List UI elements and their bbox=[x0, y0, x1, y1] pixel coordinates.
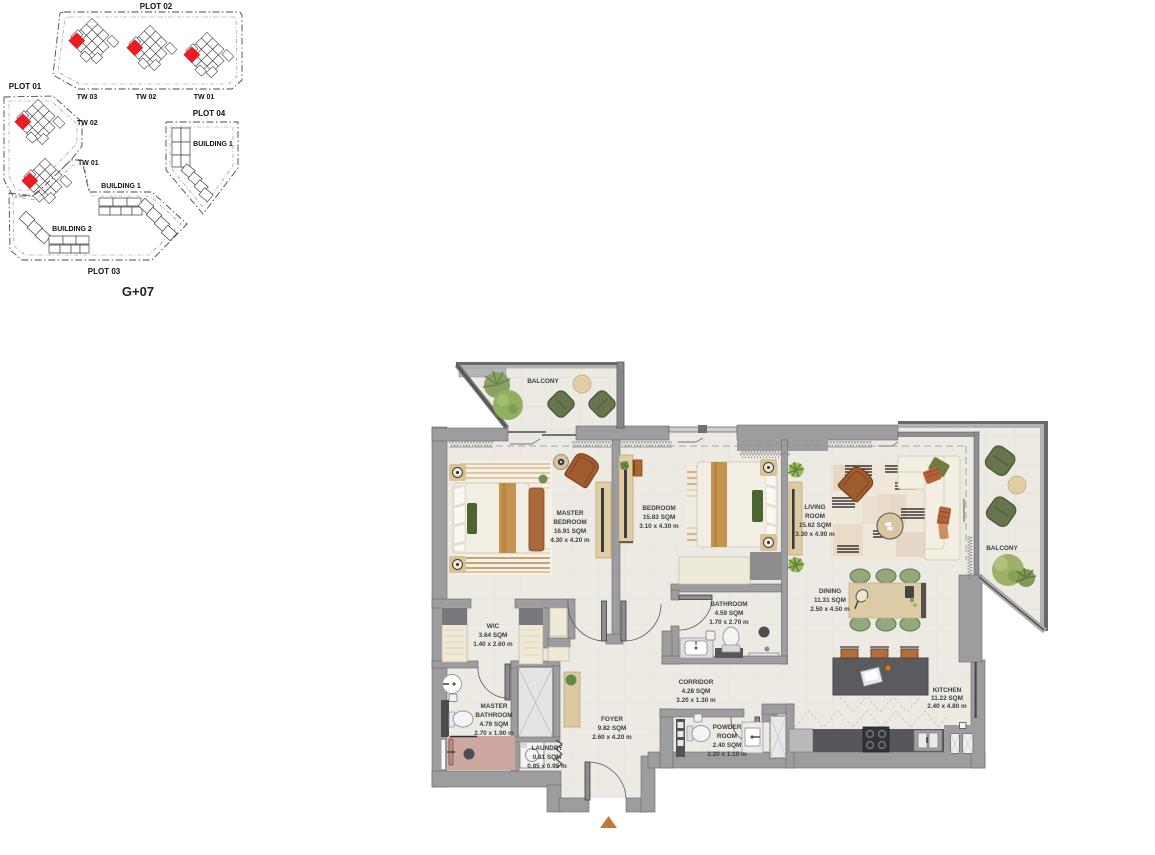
svg-text:TW 02: TW 02 bbox=[136, 94, 157, 101]
svg-text:1.70 x 2.70 m: 1.70 x 2.70 m bbox=[709, 619, 749, 626]
svg-text:15.83 SQM: 15.83 SQM bbox=[643, 514, 675, 521]
svg-text:G+07: G+07 bbox=[122, 284, 154, 299]
svg-text:2.60 x 4.20 m: 2.60 x 4.20 m bbox=[592, 734, 632, 741]
svg-text:15.62 SQM: 15.62 SQM bbox=[799, 522, 831, 529]
svg-text:BUILDING 2: BUILDING 2 bbox=[52, 226, 92, 233]
svg-text:MASTER: MASTER bbox=[557, 510, 584, 517]
svg-text:POWDER: POWDER bbox=[713, 724, 742, 731]
svg-text:16.91 SQM: 16.91 SQM bbox=[554, 528, 586, 535]
svg-text:3.64 SQM: 3.64 SQM bbox=[479, 632, 508, 639]
svg-text:4.30 x 4.20 m: 4.30 x 4.20 m bbox=[550, 537, 590, 544]
svg-text:TW 01: TW 01 bbox=[78, 160, 99, 167]
svg-text:3.30 x 4.90 m: 3.30 x 4.90 m bbox=[795, 531, 835, 538]
svg-text:BALCONY: BALCONY bbox=[527, 378, 559, 385]
svg-text:2.40 SQM: 2.40 SQM bbox=[713, 742, 742, 749]
svg-text:DINING: DINING bbox=[819, 588, 841, 595]
svg-text:BEDROOM: BEDROOM bbox=[642, 505, 675, 512]
svg-text:1.40 x 2.60 m: 1.40 x 2.60 m bbox=[473, 641, 513, 648]
svg-text:BUILDING 1: BUILDING 1 bbox=[193, 141, 233, 148]
svg-text:2.50 x 4.50 m: 2.50 x 4.50 m bbox=[810, 606, 850, 613]
svg-text:BALCONY: BALCONY bbox=[986, 545, 1018, 552]
svg-text:BUILDING 1: BUILDING 1 bbox=[101, 183, 141, 190]
svg-text:KITCHEN: KITCHEN bbox=[933, 687, 962, 694]
svg-text:2.70 x 1.90 m: 2.70 x 1.90 m bbox=[474, 730, 514, 737]
svg-text:3.20 x 1.30 m: 3.20 x 1.30 m bbox=[676, 697, 716, 704]
svg-text:PLOT 03: PLOT 03 bbox=[88, 267, 121, 276]
svg-text:CORRIDOR: CORRIDOR bbox=[679, 679, 714, 686]
svg-text:MASTER: MASTER bbox=[481, 703, 508, 710]
svg-text:0.81 SQM: 0.81 SQM bbox=[533, 754, 562, 761]
svg-text:11.22 SQM: 11.22 SQM bbox=[931, 695, 963, 702]
svg-text:BATHROOM: BATHROOM bbox=[475, 712, 512, 719]
svg-text:LIVING: LIVING bbox=[804, 504, 825, 511]
svg-text:FOYER: FOYER bbox=[601, 716, 623, 723]
svg-text:3.10 x 4.30 m: 3.10 x 4.30 m bbox=[639, 523, 679, 530]
svg-text:LAUNDRY: LAUNDRY bbox=[531, 745, 563, 752]
svg-text:BATHROOM: BATHROOM bbox=[710, 601, 747, 608]
svg-text:BEDROOM: BEDROOM bbox=[553, 519, 586, 526]
svg-text:WIC: WIC bbox=[487, 623, 500, 630]
svg-text:4.59 SQM: 4.59 SQM bbox=[715, 610, 744, 617]
svg-text:TW 03: TW 03 bbox=[77, 94, 98, 101]
svg-text:TW 02: TW 02 bbox=[77, 120, 98, 127]
svg-text:2.40 x 4.80 m: 2.40 x 4.80 m bbox=[927, 703, 967, 710]
svg-text:PLOT 02: PLOT 02 bbox=[140, 2, 173, 11]
svg-text:ROOM: ROOM bbox=[805, 513, 825, 520]
svg-text:11.31 SQM: 11.31 SQM bbox=[814, 597, 846, 604]
svg-text:0.85 x 0.95 m: 0.85 x 0.95 m bbox=[527, 763, 567, 770]
svg-text:ROOM: ROOM bbox=[717, 733, 737, 740]
svg-text:2.20 x 1.10 m: 2.20 x 1.10 m bbox=[707, 751, 747, 758]
svg-text:4.79 SQM: 4.79 SQM bbox=[480, 721, 509, 728]
svg-text:9.82 SQM: 9.82 SQM bbox=[598, 725, 627, 732]
svg-text:PLOT 04: PLOT 04 bbox=[193, 109, 226, 118]
svg-text:4.28 SQM: 4.28 SQM bbox=[682, 688, 711, 695]
svg-text:TW 01: TW 01 bbox=[194, 94, 215, 101]
svg-text:PLOT 01: PLOT 01 bbox=[9, 82, 42, 91]
